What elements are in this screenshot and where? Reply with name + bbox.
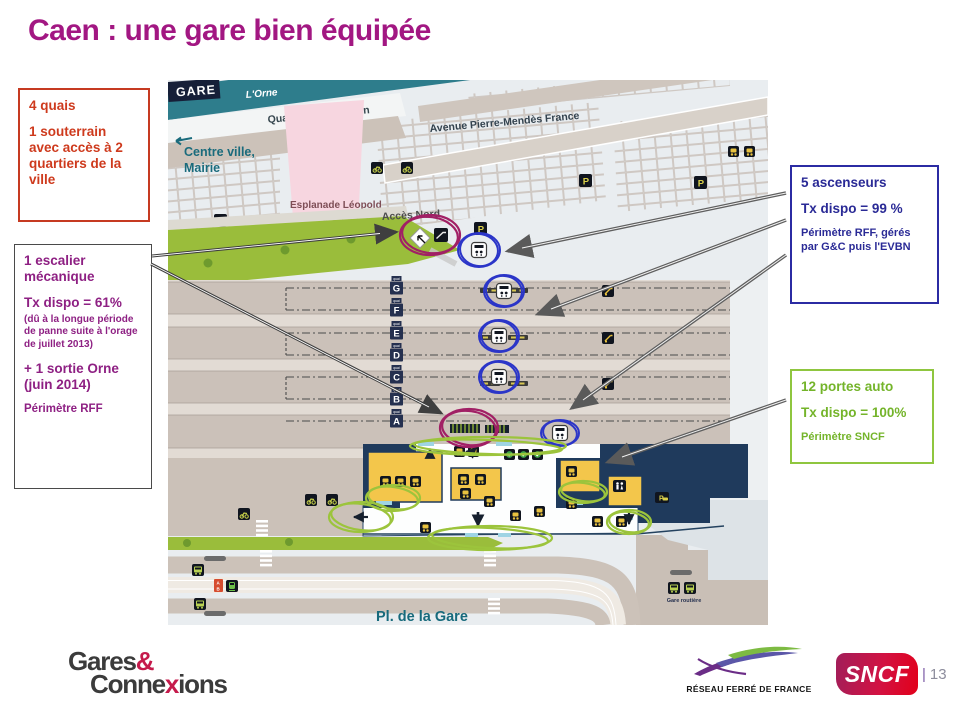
tree-icon [183, 539, 191, 547]
moto-parking-icon [305, 494, 317, 506]
tram-stop-icon: A B [214, 579, 223, 592]
parking-icon [579, 174, 592, 187]
moto-parking-icon [238, 508, 250, 520]
tree-icon [347, 235, 356, 244]
quais-line1: 4 quais [29, 98, 139, 114]
rff-swoosh-icon [690, 644, 808, 678]
ascenseurs-line2: Tx dispo = 99 % [801, 201, 928, 217]
elevator-icon [497, 284, 512, 299]
bus-icon [194, 598, 206, 610]
trolley-icon [602, 378, 614, 390]
gare-label: GARE [175, 83, 216, 100]
svg-text:quai: quai [393, 299, 400, 303]
bus-shelter-icon [204, 556, 226, 561]
escalier-line2: Tx dispo = 61% [24, 295, 142, 311]
parking-icon [694, 176, 707, 189]
platform-letters: quaiG quaiF quaiE quaiD quaiC quaiB quai… [390, 276, 403, 428]
platform-F: quaiF [390, 298, 403, 317]
platform-D: quaiD [390, 343, 403, 362]
moto-parking-icon [326, 494, 338, 506]
ascenseurs-note: Périmètre RFF, gérés par G&C puis l'EVBN [801, 227, 928, 255]
tram-icon [226, 580, 238, 592]
escalier-line4: Périmètre RFF [24, 403, 142, 417]
svg-text:quai: quai [393, 366, 400, 370]
platform-B: quaiB [390, 387, 403, 406]
elevator-icon [492, 370, 507, 385]
elevator-icon [553, 426, 568, 441]
platform-E: quaiE [390, 321, 403, 340]
toilets-icon [613, 480, 626, 492]
moto-parking-icon [401, 162, 413, 174]
portes-line2: Tx dispo = 100% [801, 405, 923, 421]
parking-car-icon [655, 492, 669, 503]
tree-icon [285, 538, 293, 546]
place-label: Pl. de la Gare [376, 609, 468, 625]
svg-text:quai: quai [393, 410, 400, 414]
page-number: |13 [922, 666, 947, 683]
gare-label-box: GARE [168, 80, 220, 102]
svg-text:B: B [393, 395, 400, 406]
platform-G: quaiG [390, 276, 403, 295]
svg-text:F: F [394, 306, 400, 317]
portes-line1: 12 portes auto [801, 379, 923, 395]
bus-shelter-icon [204, 611, 226, 616]
quais-line2: 1 souterrain avec accès à 2 quartiers de… [29, 124, 139, 188]
svg-text:Mairie: Mairie [184, 161, 220, 175]
platform-C: quaiC [390, 365, 403, 384]
service-icon [728, 146, 739, 157]
escalier-note: (dû à la longue période de panne suite à… [24, 314, 142, 352]
elevator-icon [472, 243, 487, 258]
presentation-slide: Caen : une gare bien équipée 4 quais 1 s… [0, 0, 960, 720]
station-map: P P L'Orne GARE [168, 80, 768, 625]
gares-connexions-logo: Gares& Connexions [68, 650, 227, 696]
bus-icon [192, 564, 204, 576]
callout-ascenseurs: 5 ascenseurs Tx dispo = 99 % Périmètre R… [790, 165, 939, 304]
svg-text:D: D [393, 351, 400, 362]
svg-text:quai: quai [393, 322, 400, 326]
bus-icon [684, 582, 696, 594]
bus-icon [668, 582, 680, 594]
svg-text:quai: quai [393, 388, 400, 392]
moto-parking-icon [371, 162, 383, 174]
tree-icon [281, 246, 290, 255]
callout-portes-auto: 12 portes auto Tx dispo = 100% Périmètre… [790, 369, 934, 464]
svg-text:C: C [393, 373, 400, 384]
ascenseurs-line1: 5 ascenseurs [801, 175, 928, 191]
svg-text:A: A [393, 417, 400, 428]
callout-escalier: 1 escalier mécanique Tx dispo = 61% (dû … [14, 244, 152, 489]
service-icon [744, 146, 755, 157]
bus-shelter-icon [670, 570, 692, 575]
svg-text:G: G [393, 284, 400, 295]
svg-text:quai: quai [393, 344, 400, 348]
trolley-icon [602, 285, 614, 297]
escalier-line3: + 1 sortie Orne (juin 2014) [24, 361, 142, 393]
page-title: Caen : une gare bien équipée [28, 14, 431, 48]
svg-text:quai: quai [393, 277, 400, 281]
svg-text:Centre ville,: Centre ville, [184, 145, 255, 159]
rff-logo: RÉSEAU FERRÉ DE FRANCE [686, 644, 812, 694]
svg-text:E: E [393, 329, 399, 340]
underpass-stairs [450, 424, 509, 433]
gare-routiere-label: Gare routière [667, 598, 702, 604]
rff-label: RÉSEAU FERRÉ DE FRANCE [686, 684, 812, 694]
portes-note: Périmètre SNCF [801, 431, 923, 445]
platform-A: quaiA [390, 409, 403, 428]
escalier-line1: 1 escalier mécanique [24, 253, 142, 285]
sncf-logo: SNCF [836, 653, 918, 695]
elevator-icon [492, 329, 507, 344]
tree-icon [204, 259, 213, 268]
trolley-icon [602, 332, 614, 344]
callout-quais: 4 quais 1 souterrain avec accès à 2 quar… [18, 88, 150, 222]
